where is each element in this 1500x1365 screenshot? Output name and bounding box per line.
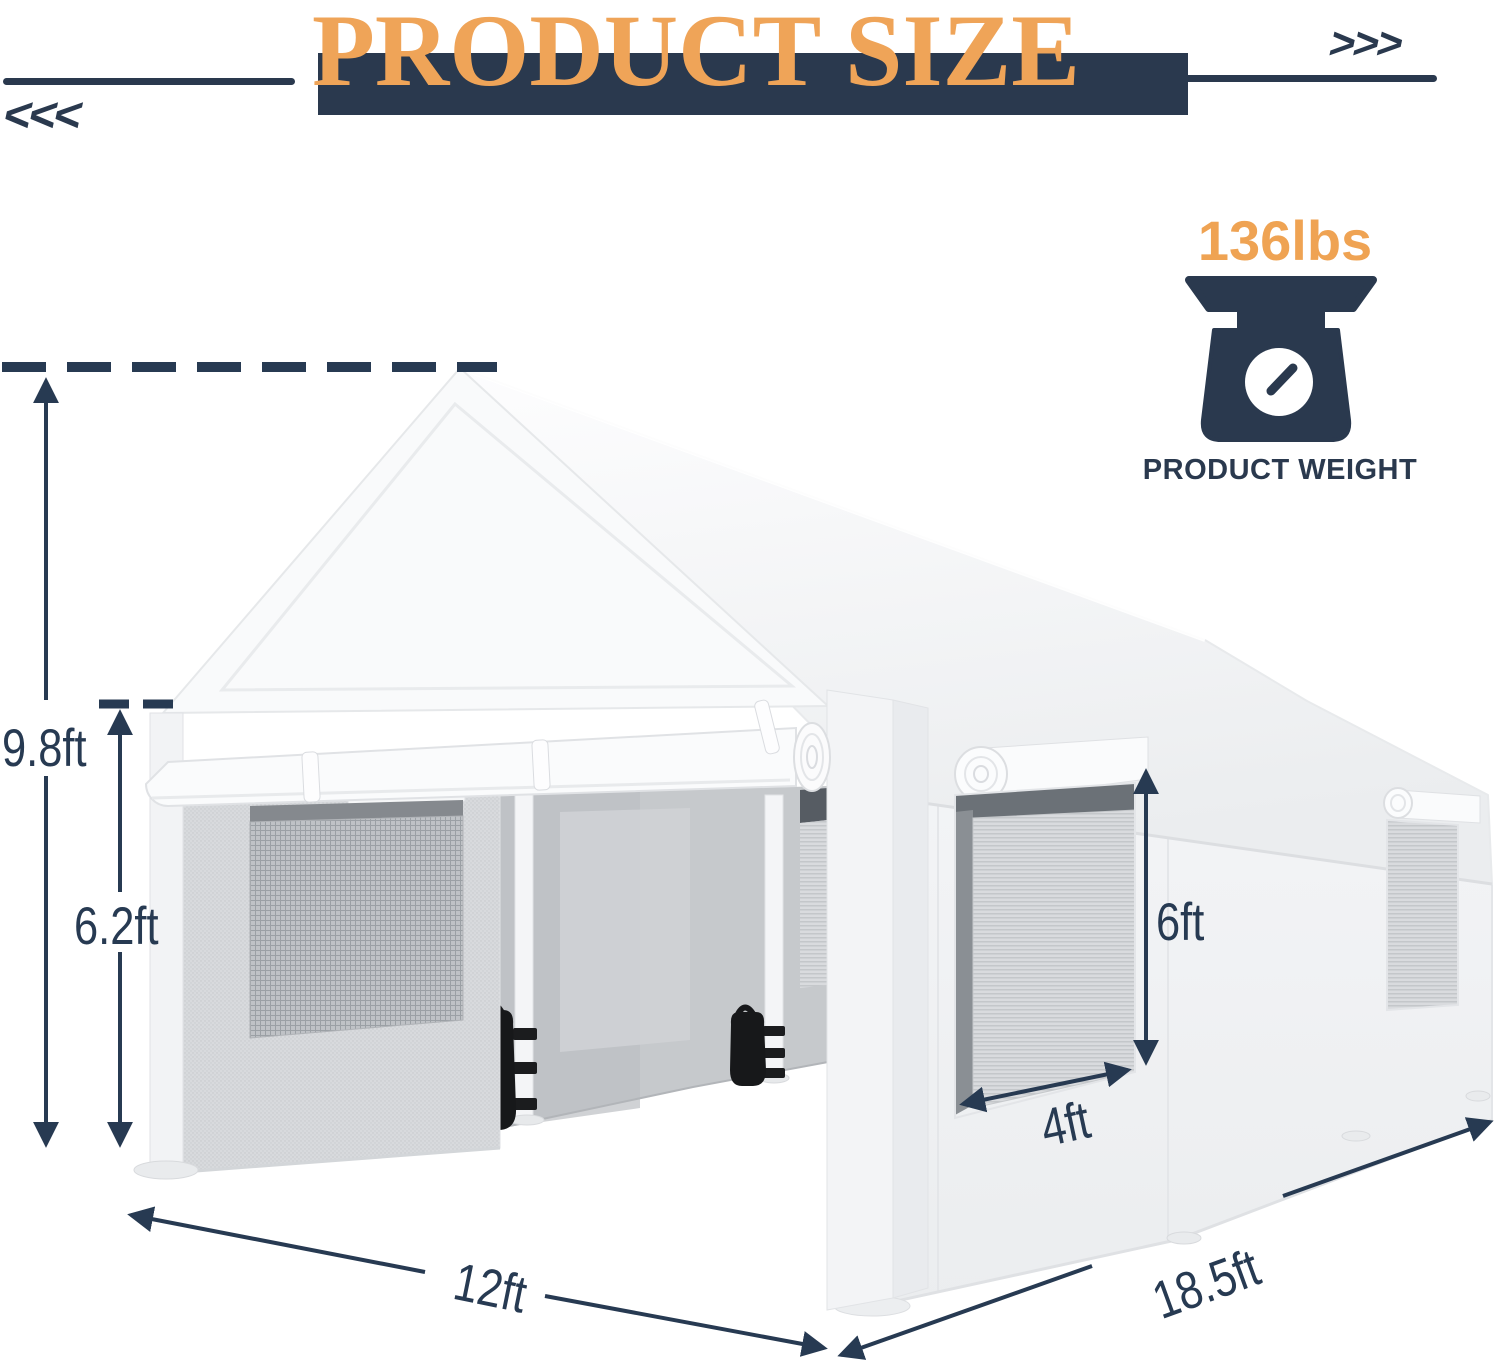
window-roll-end — [1384, 788, 1412, 818]
interior-window-shadow — [800, 788, 828, 823]
curtain-strap — [532, 740, 551, 791]
side-window-mesh — [1387, 820, 1458, 1010]
front-width-arrow-right — [545, 1296, 824, 1348]
front-width-arrow-left — [131, 1215, 425, 1272]
dimension-total-height: 9.8ft — [2, 722, 87, 775]
front-left-panel — [183, 780, 500, 1172]
front-right-pole — [827, 690, 928, 1316]
product-size-infographic: PRODUCT SIZE <<< >>> 136lbs PRODUCT WEIG… — [0, 0, 1500, 1365]
dimension-window-height: 6ft — [1156, 896, 1204, 949]
tent-interior — [469, 786, 828, 1130]
sandbag — [730, 1012, 766, 1086]
carport-illustration — [0, 0, 1500, 1365]
front-window-mesh — [250, 816, 463, 1038]
side-window-1 — [955, 737, 1148, 1118]
curtain-strap — [302, 752, 321, 803]
dimension-front-width: 12ft — [449, 1255, 531, 1321]
pole-foot — [134, 1161, 198, 1179]
side-window-mesh — [973, 810, 1135, 1108]
dimension-side-height: 6.2ft — [74, 900, 159, 953]
interior-window-mesh — [800, 820, 828, 988]
